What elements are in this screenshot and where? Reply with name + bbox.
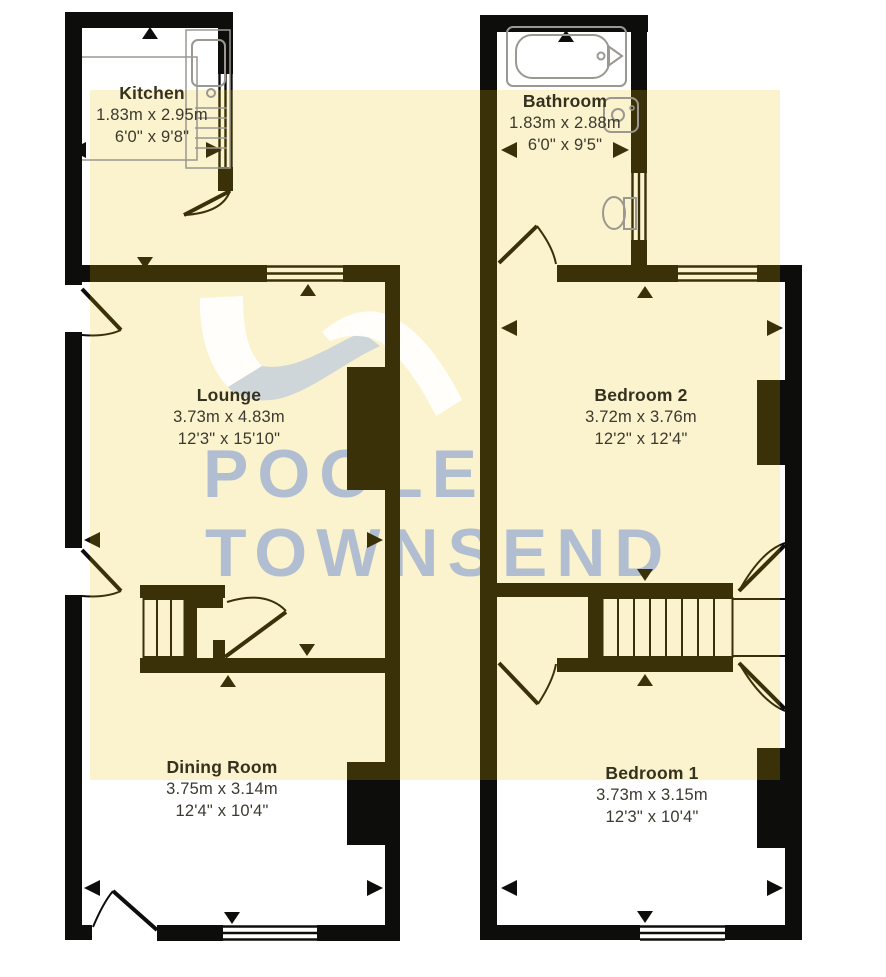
room-dims-imperial: 12'4" x 10'4" xyxy=(132,800,312,822)
room-label-bedroom1: Bedroom 1 3.73m x 3.15m 12'3" x 10'4" xyxy=(562,762,742,828)
room-dims-metric: 1.83m x 2.88m xyxy=(490,112,640,134)
room-label-lounge: Lounge 3.73m x 4.83m 12'3" x 15'10" xyxy=(139,384,319,450)
room-dims-metric: 3.73m x 3.15m xyxy=(562,784,742,806)
room-label-bedroom2: Bedroom 2 3.72m x 3.76m 12'2" x 12'4" xyxy=(551,384,731,450)
watermark-line2: TOWNSEND xyxy=(205,515,672,591)
room-dims-imperial: 6'0" x 9'5" xyxy=(490,134,640,156)
floorplan-canvas: POOLE TOWNSEND Kitchen 1.83m x 2.95m 6'0… xyxy=(0,0,886,977)
room-label-kitchen: Kitchen 1.83m x 2.95m 6'0" x 9'8" xyxy=(77,82,227,148)
room-dims-imperial: 12'2" x 12'4" xyxy=(551,428,731,450)
room-dims-imperial: 12'3" x 15'10" xyxy=(139,428,319,450)
room-label-bathroom: Bathroom 1.83m x 2.88m 6'0" x 9'5" xyxy=(490,90,640,156)
room-dims-metric: 3.73m x 4.83m xyxy=(139,406,319,428)
room-dims-metric: 3.72m x 3.76m xyxy=(551,406,731,428)
room-name: Bedroom 2 xyxy=(551,384,731,406)
room-name: Bedroom 1 xyxy=(562,762,742,784)
room-dims-imperial: 12'3" x 10'4" xyxy=(562,806,742,828)
room-label-dining: Dining Room 3.75m x 3.14m 12'4" x 10'4" xyxy=(132,756,312,822)
room-dims-metric: 1.83m x 2.95m xyxy=(77,104,227,126)
room-dims-imperial: 6'0" x 9'8" xyxy=(77,126,227,148)
room-name: Bathroom xyxy=(490,90,640,112)
room-name: Lounge xyxy=(139,384,319,406)
room-name: Dining Room xyxy=(132,756,312,778)
room-dims-metric: 3.75m x 3.14m xyxy=(132,778,312,800)
room-name: Kitchen xyxy=(77,82,227,104)
